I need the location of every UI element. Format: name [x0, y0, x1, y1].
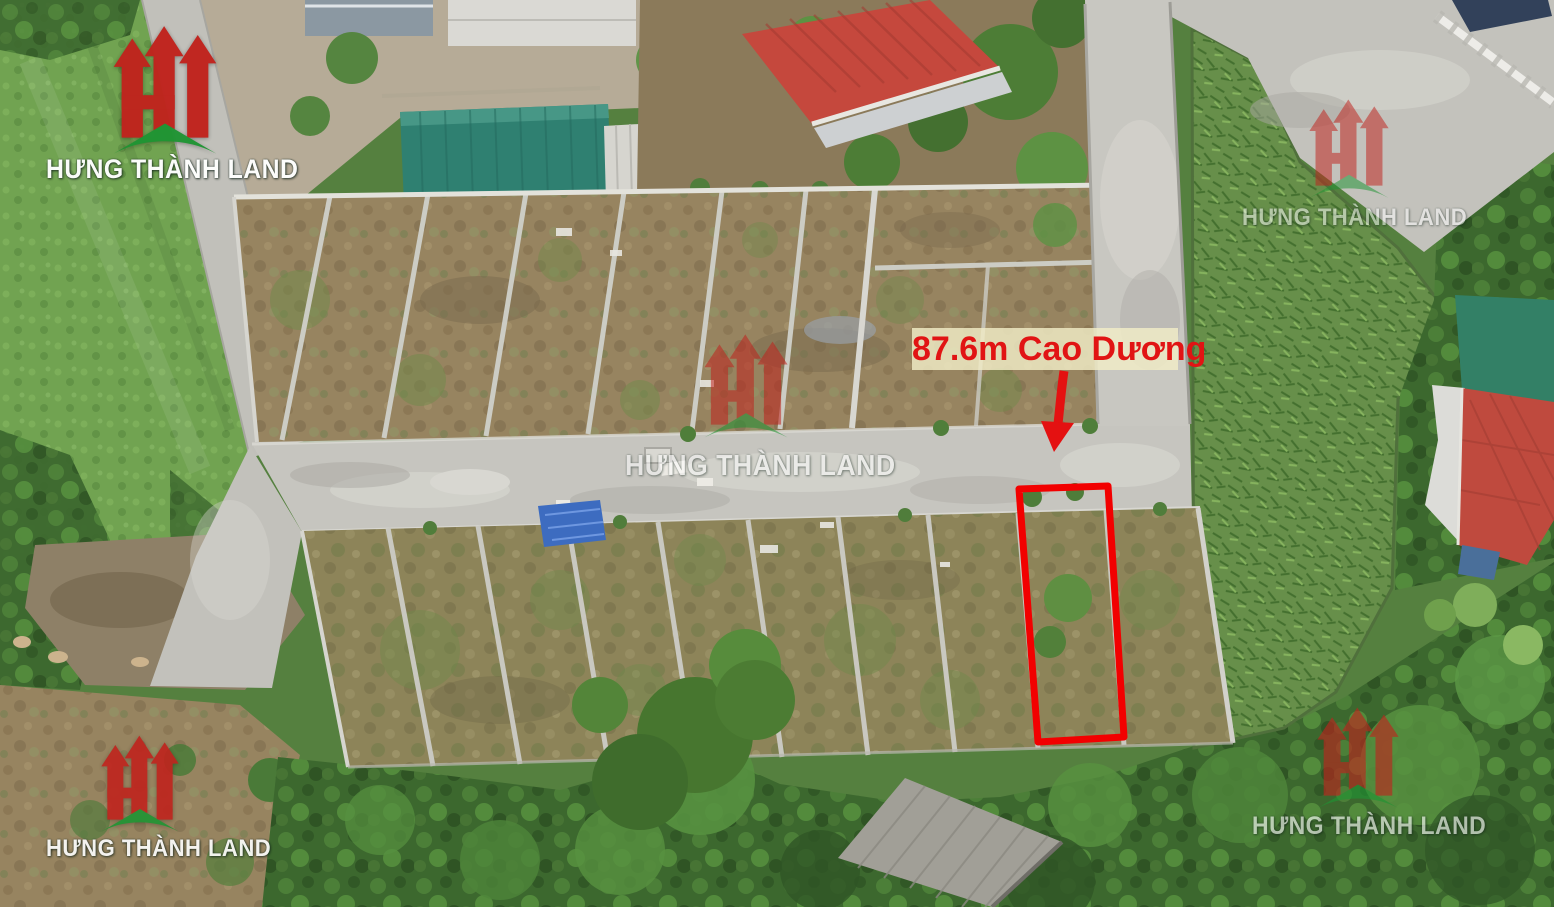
aerial-photo-scene: [0, 0, 1554, 907]
aerial-photo: 87.6m Cao Dương HƯNG THÀNH LAND HƯNG THÀ…: [0, 0, 1554, 907]
bottom-left-soil: [0, 685, 300, 907]
upper-plot-section: [234, 185, 1108, 442]
white-building: [448, 0, 636, 46]
annotation-label: 87.6m Cao Dương: [912, 328, 1178, 370]
